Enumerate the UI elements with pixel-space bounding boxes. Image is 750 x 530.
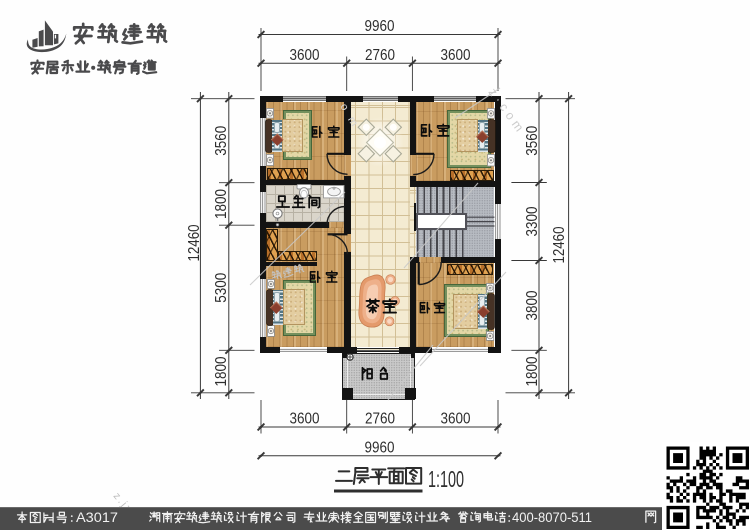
svg-text:3600: 3600	[290, 411, 320, 428]
svg-text:3300: 3300	[524, 206, 541, 236]
svg-text:3560: 3560	[524, 125, 541, 155]
svg-text:1800: 1800	[213, 189, 230, 219]
svg-text:1800: 1800	[213, 356, 230, 386]
svg-text:12460: 12460	[551, 226, 568, 263]
svg-text:3600: 3600	[441, 411, 471, 428]
svg-text:9960: 9960	[365, 440, 395, 457]
svg-text:12460: 12460	[186, 224, 203, 261]
svg-text:5300: 5300	[213, 272, 230, 302]
svg-text:1800: 1800	[524, 356, 541, 386]
svg-text:9960: 9960	[365, 18, 395, 35]
svg-text:3600: 3600	[290, 47, 320, 64]
svg-text:2760: 2760	[365, 411, 395, 428]
svg-text:3600: 3600	[441, 47, 471, 64]
svg-text:2760: 2760	[365, 47, 395, 64]
svg-text:1:100: 1:100	[428, 466, 464, 492]
svg-text:3800: 3800	[524, 290, 541, 320]
svg-text:3560: 3560	[213, 125, 230, 155]
